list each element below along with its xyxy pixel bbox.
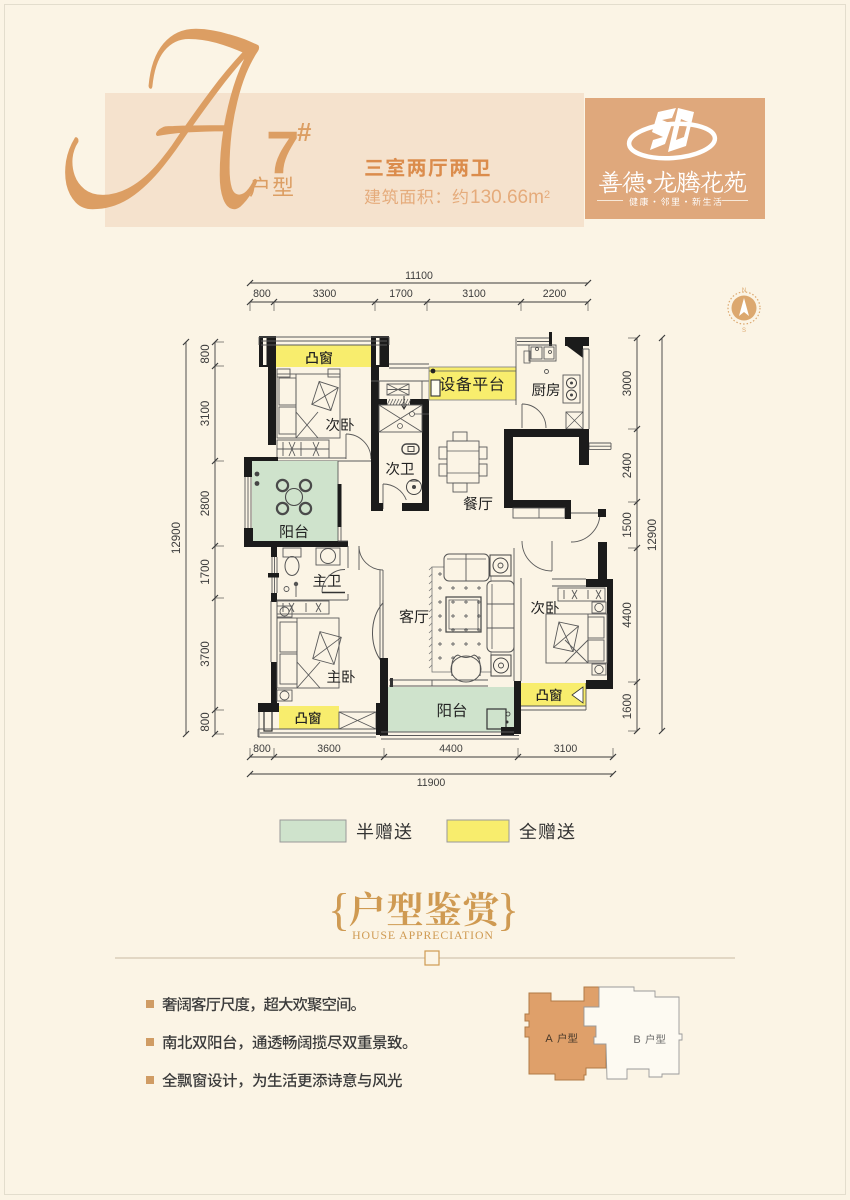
svg-text:{: { bbox=[328, 884, 350, 935]
svg-text:2200: 2200 bbox=[543, 288, 567, 300]
svg-text:N: N bbox=[742, 288, 746, 294]
svg-text:2800: 2800 bbox=[200, 491, 212, 517]
svg-text:12900: 12900 bbox=[171, 522, 183, 554]
svg-text:#: # bbox=[297, 117, 312, 147]
svg-text:3600: 3600 bbox=[317, 743, 341, 755]
svg-text:11900: 11900 bbox=[417, 777, 446, 789]
svg-text:4400: 4400 bbox=[622, 602, 634, 628]
svg-text:3100: 3100 bbox=[554, 743, 578, 755]
svg-text:12900: 12900 bbox=[647, 519, 659, 551]
svg-text:11100: 11100 bbox=[405, 270, 433, 282]
svg-text:3100: 3100 bbox=[462, 288, 486, 300]
svg-text:S: S bbox=[742, 328, 746, 334]
svg-text:800: 800 bbox=[200, 712, 212, 731]
svg-text:2400: 2400 bbox=[622, 453, 634, 479]
svg-text:3000: 3000 bbox=[622, 371, 634, 397]
svg-text:3700: 3700 bbox=[200, 641, 212, 667]
svg-text:800: 800 bbox=[253, 288, 271, 300]
svg-text:4400: 4400 bbox=[439, 743, 463, 755]
svg-text:800: 800 bbox=[253, 743, 271, 755]
svg-text:HOUSE APPRECIATION: HOUSE APPRECIATION bbox=[352, 928, 494, 942]
svg-text:130.66m2: 130.66m2 bbox=[470, 187, 550, 208]
svg-text:1600: 1600 bbox=[622, 694, 634, 720]
svg-text:3100: 3100 bbox=[200, 401, 212, 427]
svg-text:1700: 1700 bbox=[389, 288, 413, 300]
svg-text:1700: 1700 bbox=[200, 559, 212, 585]
svg-text:}: } bbox=[497, 884, 519, 935]
svg-text:B: B bbox=[633, 1034, 640, 1046]
svg-text:7: 7 bbox=[266, 119, 299, 186]
svg-text:3300: 3300 bbox=[313, 288, 337, 300]
svg-text:1500: 1500 bbox=[622, 512, 634, 538]
svg-text:A: A bbox=[545, 1033, 553, 1045]
svg-text:800: 800 bbox=[200, 344, 212, 363]
